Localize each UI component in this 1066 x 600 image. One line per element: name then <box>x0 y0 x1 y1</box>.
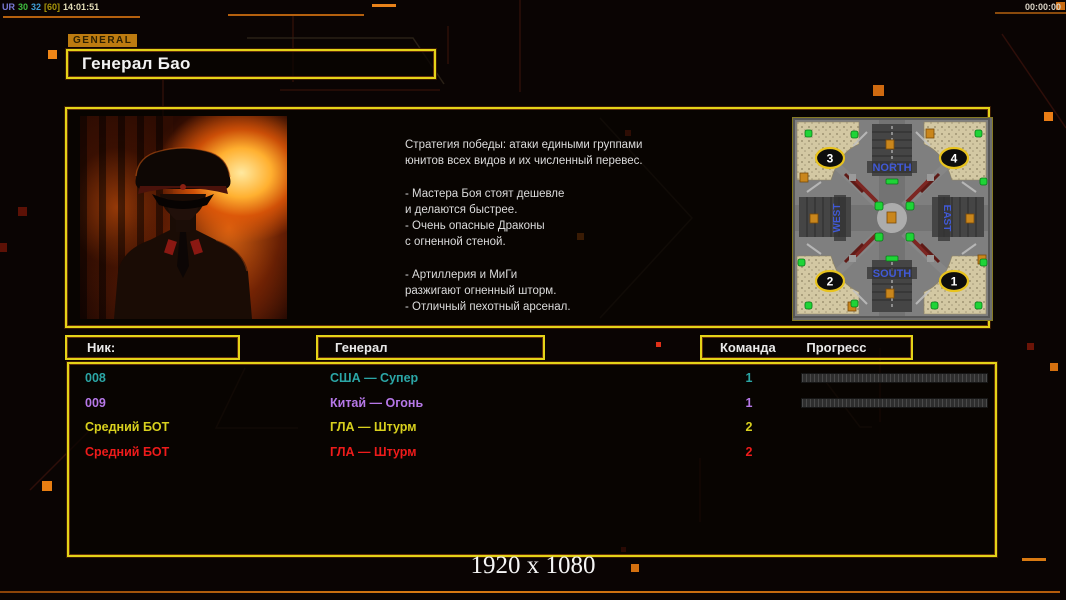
player-team: 2 <box>729 420 769 434</box>
player-team: 1 <box>729 371 769 385</box>
player-general: Китай — Огонь <box>330 396 423 410</box>
decor-square <box>1050 363 1058 371</box>
decor-square <box>18 207 27 216</box>
decor-line <box>995 12 1066 14</box>
decor-line <box>0 591 1060 593</box>
stats-tag: UR <box>2 2 15 12</box>
player-team: 1 <box>729 396 769 410</box>
stats-fps: 30 <box>18 2 28 12</box>
map-label-west: WEST <box>832 204 843 233</box>
decor-square <box>42 481 52 491</box>
players-panel: 008 США — Супер 1 009 Китай — Огонь 1 Ср… <box>67 362 997 557</box>
decor-line <box>372 4 396 7</box>
strategy-description: Стратегия победы: атаки едиными группами… <box>405 137 705 315</box>
player-general: ГЛА — Штурм <box>330 445 417 459</box>
decor-square <box>1027 343 1034 350</box>
resolution-label: 1920 x 1080 <box>0 552 1066 580</box>
player-nick: 009 <box>85 396 106 410</box>
spawn-4: 4 <box>951 152 958 166</box>
player-row-2: 009 Китай — Огонь 1 <box>69 392 995 416</box>
map-label-south: SOUTH <box>873 268 912 280</box>
player-row-3: Средний БОТ ГЛА — Штурм 2 <box>69 416 995 440</box>
general-tab-label: GENERAL <box>68 34 137 47</box>
player-row-4: Средний БОТ ГЛА — Штурм 2 <box>69 441 995 465</box>
player-nick: Средний БОТ <box>85 445 169 459</box>
general-portrait <box>80 116 287 319</box>
player-general: США — Супер <box>330 371 418 385</box>
column-header-nick: Ник: <box>87 340 115 355</box>
player-progress-bar <box>801 398 988 408</box>
officer-silhouette-image <box>80 116 287 319</box>
decor-square <box>1044 112 1053 121</box>
general-name: Генерал Бао <box>68 51 434 77</box>
general-title-box: Генерал Бао <box>66 49 436 79</box>
header-box-team-progress: Команда Прогресс <box>700 335 913 360</box>
decor-square <box>48 50 57 59</box>
decor-square <box>0 243 7 252</box>
header-box-nick: Ник: <box>65 335 240 360</box>
spawn-2: 2 <box>827 275 834 289</box>
stats-cap: [60] <box>44 2 60 12</box>
column-header-team: Команда <box>720 340 776 355</box>
spawn-1: 1 <box>951 275 958 289</box>
player-nick: 008 <box>85 371 106 385</box>
match-timer: 00:00:00 <box>1025 2 1061 12</box>
decor-line <box>3 16 140 18</box>
map-label-north: NORTH <box>872 162 911 174</box>
player-team: 2 <box>729 445 769 459</box>
decor-square <box>656 342 661 347</box>
column-header-general: Генерал <box>335 340 387 355</box>
player-row-1: 008 США — Супер 1 <box>69 367 995 391</box>
header-box-general: Генерал <box>316 335 545 360</box>
loading-screen: UR3032[60]14:01:51 00:00:00 GENERAL Гене… <box>0 0 1066 600</box>
player-progress-bar <box>801 373 988 383</box>
map-preview: NORTH SOUTH WEST EAST 3 4 2 1 <box>792 117 993 321</box>
stats-val: 32 <box>31 2 41 12</box>
stats-clock: 14:01:51 <box>63 2 99 12</box>
gentool-stats-overlay: UR3032[60]14:01:51 <box>2 2 102 12</box>
decor-line <box>228 14 364 16</box>
spawn-3: 3 <box>827 152 834 166</box>
player-general: ГЛА — Штурм <box>330 420 417 434</box>
player-nick: Средний БОТ <box>85 420 169 434</box>
column-header-progress: Прогресс <box>806 340 866 355</box>
decor-square <box>873 85 884 96</box>
map-label-east: EAST <box>941 205 952 232</box>
